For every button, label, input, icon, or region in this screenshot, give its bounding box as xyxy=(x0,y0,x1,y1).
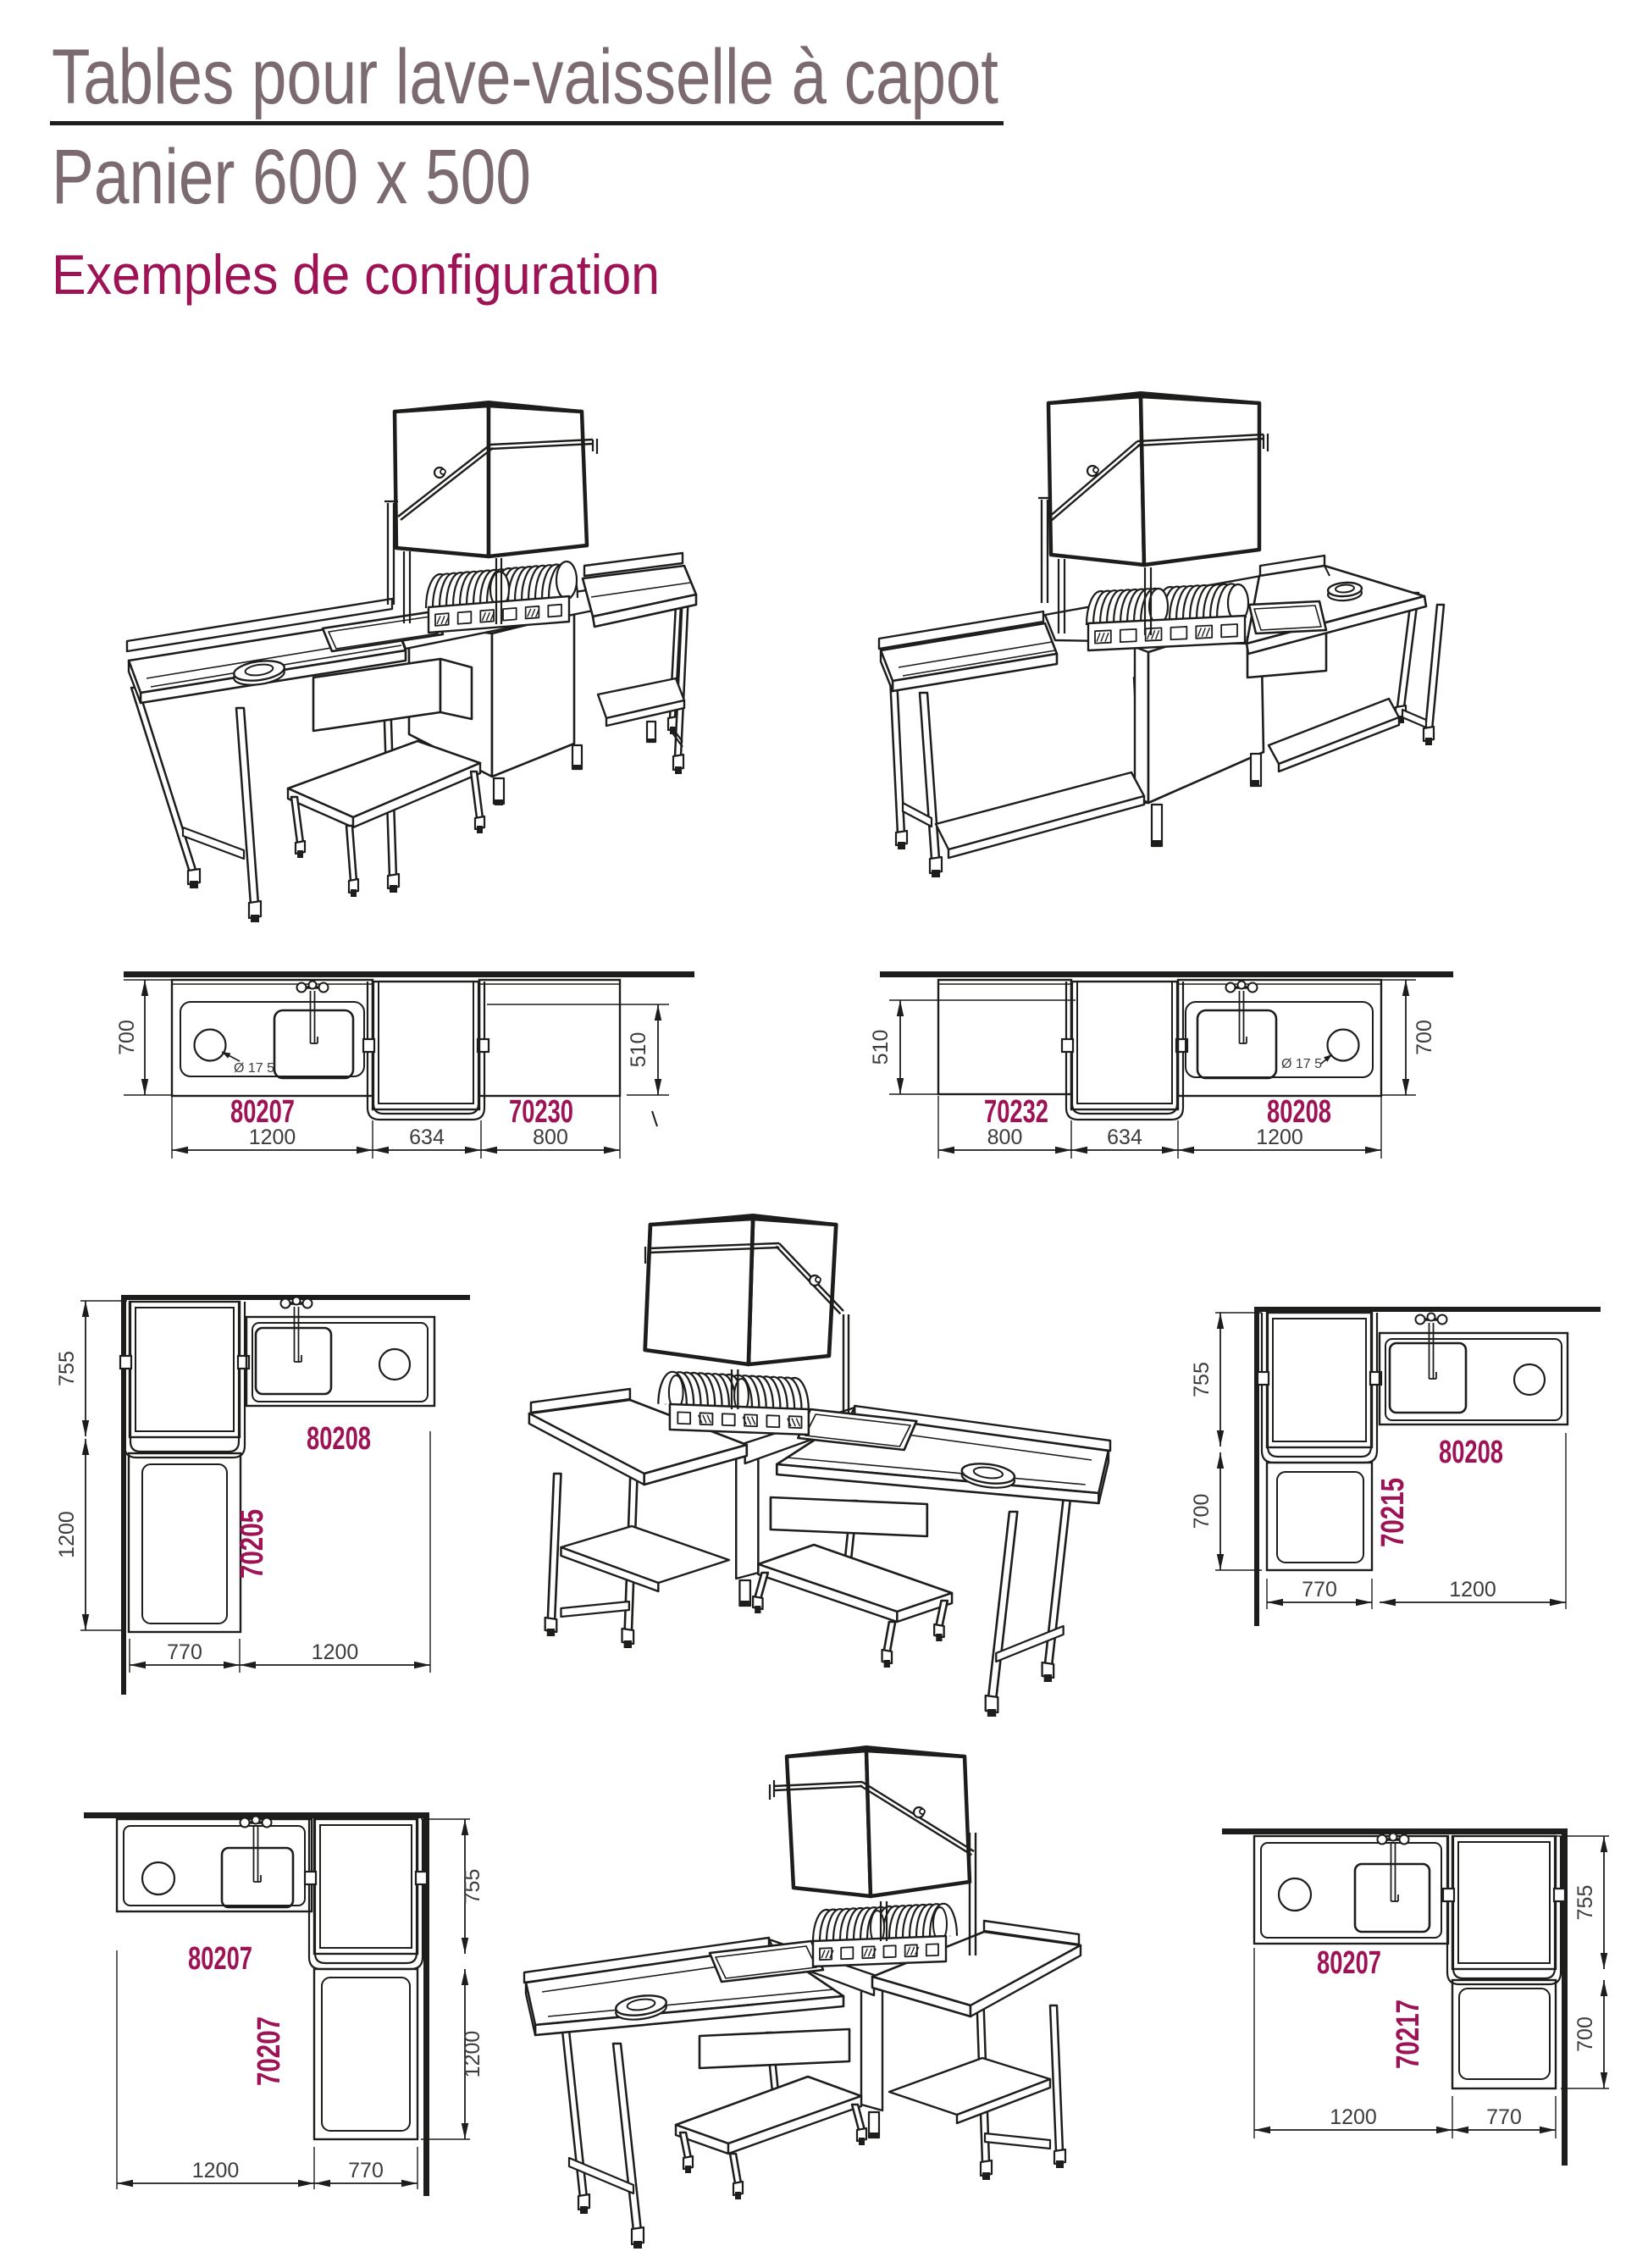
svg-text:Panier 600 x 500: Panier 600 x 500 xyxy=(52,134,531,220)
svg-text:1200: 1200 xyxy=(55,1511,79,1558)
svg-text:755: 755 xyxy=(55,1351,79,1386)
svg-text:70215: 70215 xyxy=(1375,1478,1411,1547)
svg-text:510: 510 xyxy=(627,1032,650,1068)
svg-text:1200: 1200 xyxy=(312,1640,359,1664)
svg-text:800: 800 xyxy=(987,1126,1023,1149)
svg-text:770: 770 xyxy=(348,2159,384,2182)
svg-text:700: 700 xyxy=(1190,1494,1214,1530)
svg-text:755: 755 xyxy=(461,1869,484,1905)
svg-text:770: 770 xyxy=(1486,2105,1522,2129)
svg-text:Exemples de configuration: Exemples de configuration xyxy=(52,243,660,306)
svg-text:700: 700 xyxy=(1573,2016,1597,2052)
svg-text:700: 700 xyxy=(115,1020,139,1055)
svg-text:634: 634 xyxy=(1107,1126,1142,1149)
svg-text:1200: 1200 xyxy=(461,2031,484,2078)
svg-text:510: 510 xyxy=(869,1030,893,1065)
svg-text:70217: 70217 xyxy=(1391,2000,1426,2069)
svg-text:Ø 17 5: Ø 17 5 xyxy=(1281,1057,1322,1071)
svg-text:634: 634 xyxy=(409,1126,445,1149)
svg-text:1200: 1200 xyxy=(1449,1578,1496,1601)
svg-text:1200: 1200 xyxy=(1330,2105,1377,2129)
svg-text:80208: 80208 xyxy=(1439,1435,1503,1470)
svg-text:Tables pour lave-vaisselle à c: Tables pour lave-vaisselle à capot xyxy=(52,34,998,120)
svg-text:755: 755 xyxy=(1573,1885,1597,1921)
svg-text:1200: 1200 xyxy=(249,1126,296,1149)
svg-text:80207: 80207 xyxy=(1317,1945,1381,1981)
svg-text:1200: 1200 xyxy=(192,2159,240,2182)
svg-text:80208: 80208 xyxy=(307,1421,371,1457)
svg-text:70207: 70207 xyxy=(252,2016,287,2086)
svg-text:80208: 80208 xyxy=(1267,1094,1331,1130)
svg-text:755: 755 xyxy=(1190,1362,1214,1397)
svg-text:1200: 1200 xyxy=(1256,1126,1303,1149)
svg-text:70230: 70230 xyxy=(509,1094,573,1130)
svg-text:70205: 70205 xyxy=(235,1509,270,1579)
svg-text:80207: 80207 xyxy=(188,1941,252,1977)
svg-text:70232: 70232 xyxy=(984,1094,1048,1130)
svg-text:80207: 80207 xyxy=(230,1094,295,1130)
svg-text:770: 770 xyxy=(167,1640,202,1664)
svg-text:800: 800 xyxy=(533,1126,568,1149)
svg-text:700: 700 xyxy=(1413,1020,1436,1055)
svg-text:Ø 17 5: Ø 17 5 xyxy=(234,1061,274,1076)
svg-text:770: 770 xyxy=(1302,1578,1337,1601)
